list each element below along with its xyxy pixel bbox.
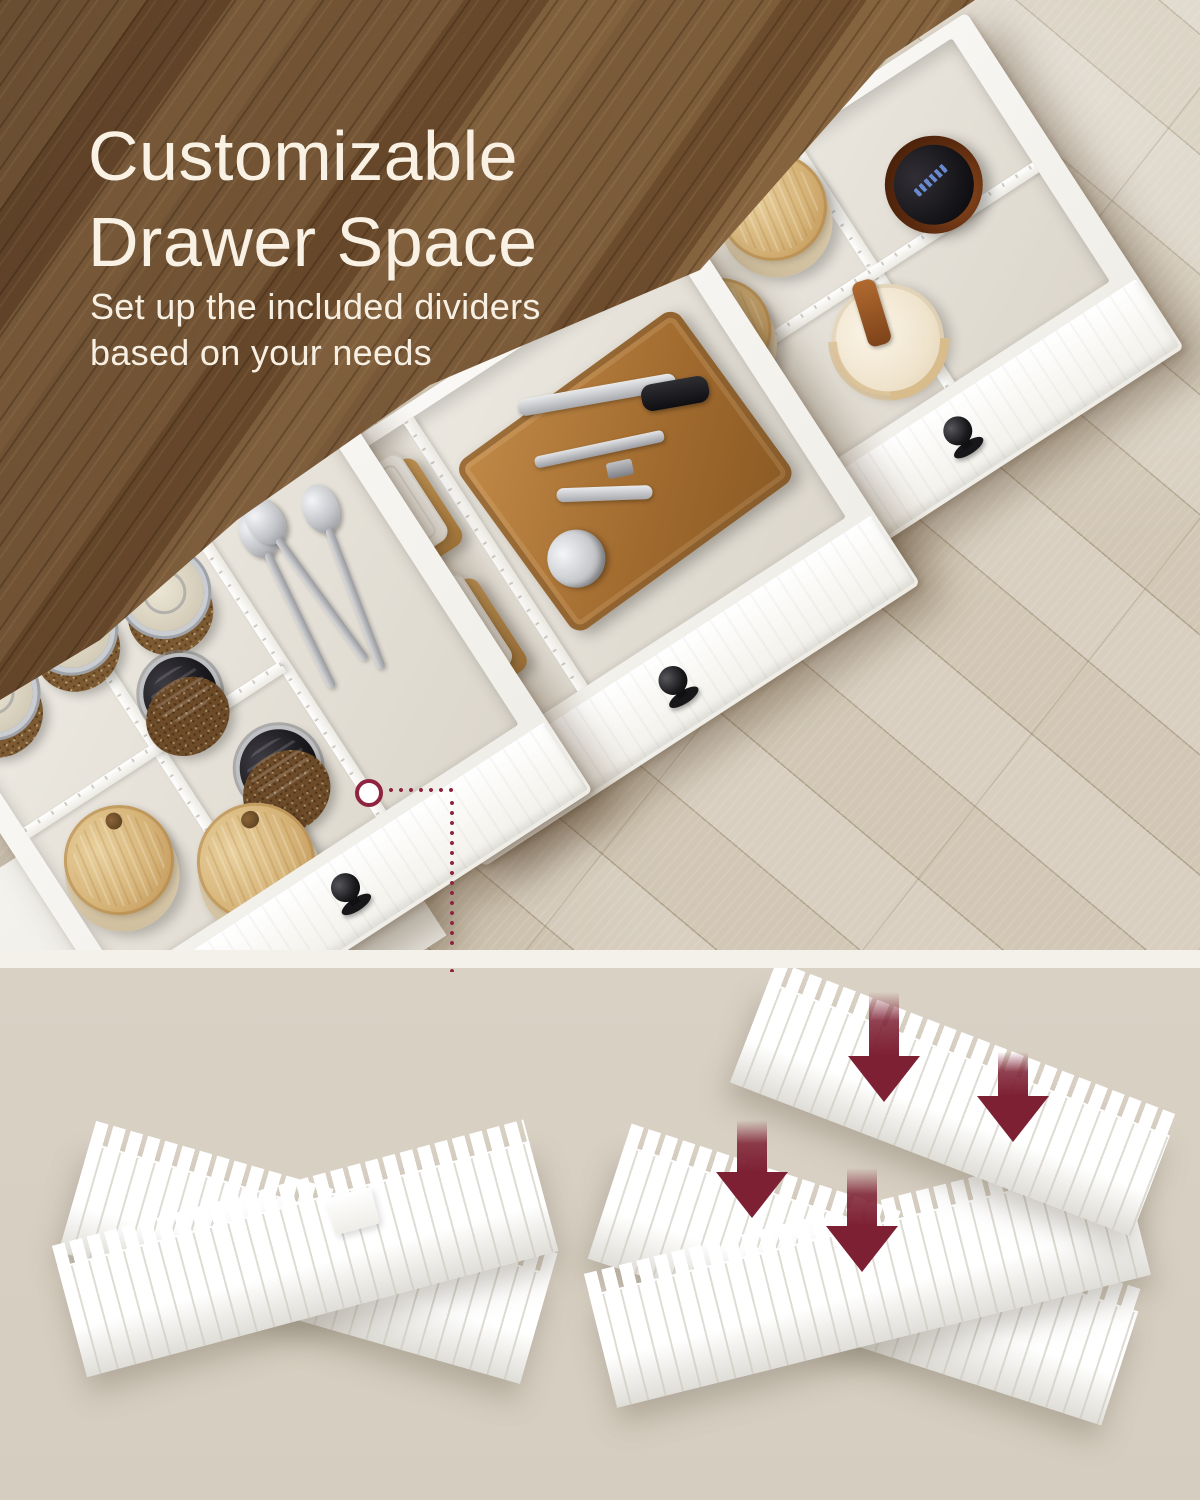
- dotted-connector-vertical: [449, 798, 455, 950]
- arrow-head: [977, 1096, 1049, 1142]
- cream-canister-with-strap: [810, 262, 965, 417]
- subtitle-line-2: based on your needs: [90, 330, 541, 376]
- title-line-2: Drawer Space: [88, 199, 538, 285]
- arrow-head: [848, 1056, 920, 1102]
- page-subtitle: Set up the included dividers based on yo…: [90, 284, 541, 376]
- subtitle-line-1: Set up the included dividers: [90, 284, 541, 330]
- amber-glass-jar: [866, 117, 1002, 253]
- dotted-connector-end: [449, 968, 455, 972]
- drawer-knob: [646, 656, 711, 721]
- corkscrew-hinge: [606, 458, 635, 479]
- arrow-head: [826, 1226, 898, 1272]
- title-line-1: Customizable: [88, 113, 538, 199]
- section-divider-strip: [0, 950, 1200, 968]
- arrow-shaft: [998, 1052, 1028, 1096]
- drawer-knob: [931, 406, 996, 471]
- arrow-shaft: [847, 1168, 877, 1226]
- arrow-shaft: [869, 992, 899, 1056]
- product-infographic: Customizable Drawer Space Set up the inc…: [0, 0, 1200, 1500]
- scoop-handle: [556, 485, 652, 502]
- circle-marker-icon: [355, 779, 383, 807]
- arrow-shaft: [737, 1120, 767, 1172]
- page-title: Customizable Drawer Space: [88, 113, 538, 285]
- dotted-connector-horizontal: [386, 787, 454, 793]
- ice-cream-scoop-icon: [536, 518, 617, 599]
- drawer-knob: [318, 863, 383, 928]
- hero-photo: Customizable Drawer Space Set up the inc…: [0, 0, 1200, 950]
- corkscrew-icon: [534, 430, 666, 469]
- arrow-head: [716, 1172, 788, 1218]
